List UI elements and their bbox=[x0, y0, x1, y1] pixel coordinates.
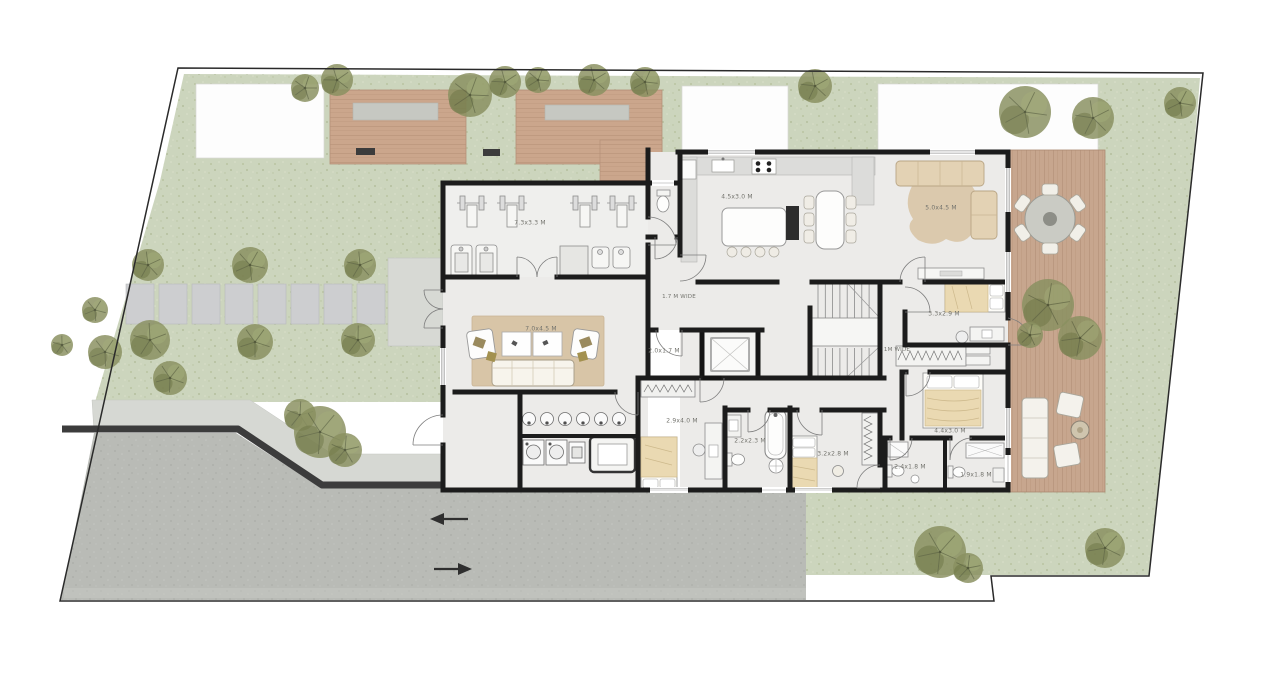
rug bbox=[908, 178, 977, 244]
exercise-bike-icon bbox=[613, 247, 630, 268]
tree-icon bbox=[999, 86, 1051, 138]
desk-chair-icon bbox=[956, 331, 968, 343]
tree-icon bbox=[798, 69, 832, 103]
exercise-mat-icon bbox=[560, 246, 588, 276]
tree-icon bbox=[130, 320, 170, 360]
tree-icon bbox=[344, 249, 376, 281]
neighbour-notch bbox=[682, 86, 788, 156]
stool-icon bbox=[833, 466, 844, 477]
treadmill-icon bbox=[451, 245, 472, 278]
tree-icon bbox=[630, 67, 660, 97]
bench-icon bbox=[356, 148, 375, 155]
stepping-stone bbox=[324, 284, 352, 324]
stepping-stone bbox=[225, 284, 253, 324]
window-icon bbox=[1005, 408, 1011, 448]
wc bbox=[657, 190, 670, 212]
window-icon bbox=[708, 149, 755, 155]
toilet-icon bbox=[887, 465, 904, 477]
tree-icon bbox=[1058, 316, 1102, 360]
neighbour-notch bbox=[878, 84, 1098, 150]
window-icon bbox=[652, 180, 674, 186]
vanity-icon bbox=[726, 415, 741, 437]
window-icon bbox=[440, 348, 446, 385]
living-room bbox=[466, 316, 604, 386]
dryer-icon bbox=[546, 440, 567, 465]
tree-icon bbox=[51, 334, 73, 356]
bathtub-icon bbox=[765, 409, 786, 459]
window-icon bbox=[795, 487, 832, 493]
pedestal-sink-icon bbox=[769, 459, 783, 473]
pillow-icon bbox=[990, 298, 1003, 309]
door-icon bbox=[656, 330, 682, 356]
island-end-cabinet bbox=[786, 206, 799, 240]
tree-icon bbox=[1017, 322, 1043, 348]
stepping-stone bbox=[159, 284, 187, 324]
tree-icon bbox=[489, 66, 521, 98]
floor-plan: 7.3x3.3 M 4.5x3.0 M 5.0x4.5 M 1.7 M WIDE… bbox=[0, 0, 1280, 683]
tree-icon bbox=[1164, 87, 1196, 119]
tree-icon bbox=[153, 361, 187, 395]
pillow-icon bbox=[990, 285, 1003, 296]
bed-icon bbox=[791, 436, 817, 490]
sofa-icon bbox=[896, 161, 984, 186]
stair-landing bbox=[812, 318, 878, 346]
desk-chair-icon bbox=[693, 444, 705, 456]
dining-table bbox=[804, 191, 856, 249]
exercise-bike-icon bbox=[592, 247, 609, 268]
sink-icon bbox=[712, 158, 734, 173]
elevator bbox=[702, 328, 758, 378]
sink-icon bbox=[993, 468, 1004, 482]
tree-icon bbox=[953, 553, 983, 583]
utility-sink-icon bbox=[590, 437, 635, 472]
entry-patio bbox=[388, 258, 443, 346]
tree-icon bbox=[88, 335, 122, 369]
tree-icon bbox=[1072, 97, 1114, 139]
fridge-icon bbox=[682, 160, 696, 179]
deck-inset bbox=[353, 103, 438, 120]
shelf-icon bbox=[966, 356, 990, 365]
window-icon bbox=[930, 149, 975, 155]
tree-icon bbox=[328, 433, 362, 467]
appliance-icon bbox=[569, 442, 585, 463]
stepping-stone bbox=[126, 284, 154, 324]
window-icon bbox=[650, 487, 688, 493]
deck-inset bbox=[545, 105, 629, 120]
stepping-stone bbox=[192, 284, 220, 324]
tree-icon bbox=[82, 297, 108, 323]
deck-topleft-1 bbox=[330, 90, 466, 164]
window-icon bbox=[762, 487, 786, 493]
treadmill-icon bbox=[476, 245, 497, 278]
tv-console bbox=[918, 268, 984, 279]
sink-icon bbox=[911, 475, 919, 483]
washer-icon bbox=[523, 440, 544, 465]
stepping-stone bbox=[291, 284, 319, 324]
tree-icon bbox=[1085, 528, 1125, 568]
tree-icon bbox=[237, 324, 273, 360]
pillow-icon bbox=[643, 479, 658, 488]
toilet-icon bbox=[726, 453, 745, 466]
window-icon bbox=[1005, 455, 1011, 482]
tree-icon bbox=[232, 247, 268, 283]
bench-icon bbox=[483, 149, 500, 156]
pillow-icon bbox=[660, 479, 675, 488]
bed-icon bbox=[945, 283, 1005, 312]
toilet-icon bbox=[657, 190, 670, 196]
stove-icon bbox=[752, 159, 776, 174]
sofa-icon bbox=[492, 360, 574, 386]
tree-icon bbox=[525, 67, 551, 93]
toilet-icon bbox=[948, 466, 965, 478]
tree-icon bbox=[578, 64, 610, 96]
window-icon bbox=[1005, 252, 1011, 292]
window-icon bbox=[1005, 168, 1011, 212]
bed-icon bbox=[641, 437, 677, 490]
stepping-stone bbox=[357, 284, 385, 324]
master-bedroom bbox=[923, 373, 983, 428]
stepping-stone bbox=[258, 284, 286, 324]
door-icon bbox=[413, 415, 443, 445]
tree-icon bbox=[341, 323, 375, 357]
bed-icon bbox=[923, 373, 983, 428]
tree-icon bbox=[291, 74, 319, 102]
wardrobe-icon bbox=[641, 380, 695, 397]
tree-icon bbox=[448, 73, 492, 117]
